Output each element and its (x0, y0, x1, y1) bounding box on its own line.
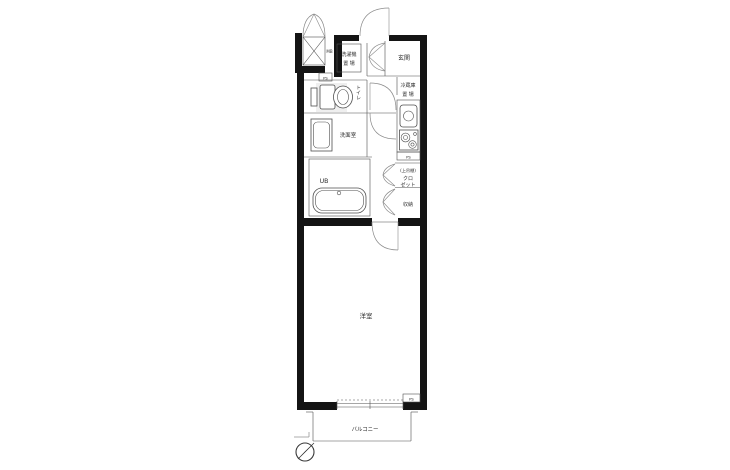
meter-box-label: MB (326, 49, 332, 54)
toilet-room: トイレ (304, 80, 396, 113)
ps-label-room: PS (409, 397, 414, 402)
wall-mid-right (398, 218, 427, 226)
unit-bath-label: UB (320, 178, 329, 185)
storage-bifold-leaf-2 (383, 202, 395, 215)
wall-bottom-right (403, 402, 427, 410)
washroom-label: 洗面室 (340, 131, 357, 139)
balcony: バルコニー (294, 412, 418, 441)
wall-top-left (334, 35, 359, 41)
meter-box: MB (303, 14, 333, 65)
washroom-door-arc (370, 113, 396, 139)
balcony-label: バルコニー (352, 426, 379, 433)
closet-label-line2: ゼット (400, 182, 415, 189)
fridge-label-line1: 冷蔵庫 (400, 82, 415, 89)
washroom: 洗面室 (304, 113, 396, 157)
wall-bottom-left (297, 402, 337, 410)
entrance-label: 玄関 (398, 54, 410, 62)
entrance-area: 玄関 (360, 8, 420, 76)
floorplan-page: MB PS 玄関 洗濯機 置 場 トイレ (0, 0, 730, 470)
ps-label-kitchen: PS (406, 155, 411, 160)
wall-left (297, 66, 304, 410)
closet-shelf-label: (上吊棚) (400, 167, 416, 174)
laundry-label-line2: 置 場 (343, 60, 355, 67)
closet-storage: (上吊棚) クロ ゼット 収納 (383, 163, 420, 215)
compass (296, 443, 314, 461)
fridge-label-line2: 置 場 (402, 91, 414, 98)
compass-needle (299, 443, 314, 458)
toilet-tank (320, 85, 335, 109)
kitchen: 冷蔵庫 置 場 PS (397, 77, 420, 160)
closet-bifold-leaf-2 (383, 175, 395, 186)
kitchen-sink (400, 105, 417, 127)
room-door-arc (372, 222, 398, 250)
ps-label-top: PS (323, 75, 328, 80)
toilet-door-arc (370, 83, 396, 110)
entrance-door-arc (360, 8, 389, 36)
floorplan-drawing: MB PS 玄関 洗濯機 置 場 トイレ (0, 0, 730, 470)
closet-label-line1: クロ (403, 176, 413, 182)
storage-label: 収納 (403, 201, 413, 208)
closet-bifold-leaf-1 (383, 164, 395, 175)
western-room-label: 洋室 (360, 311, 373, 320)
storage-bifold-leaf-1 (383, 189, 395, 202)
bathtub-outer (313, 188, 366, 213)
toilet-control (311, 88, 317, 106)
western-room: 洋室 PS (337, 222, 420, 409)
wall-mid-left (297, 218, 372, 226)
toilet-label: トイレ (355, 85, 361, 100)
laundry-label-line1: 洗濯機 (341, 51, 356, 58)
unit-bath: UB (309, 159, 370, 216)
